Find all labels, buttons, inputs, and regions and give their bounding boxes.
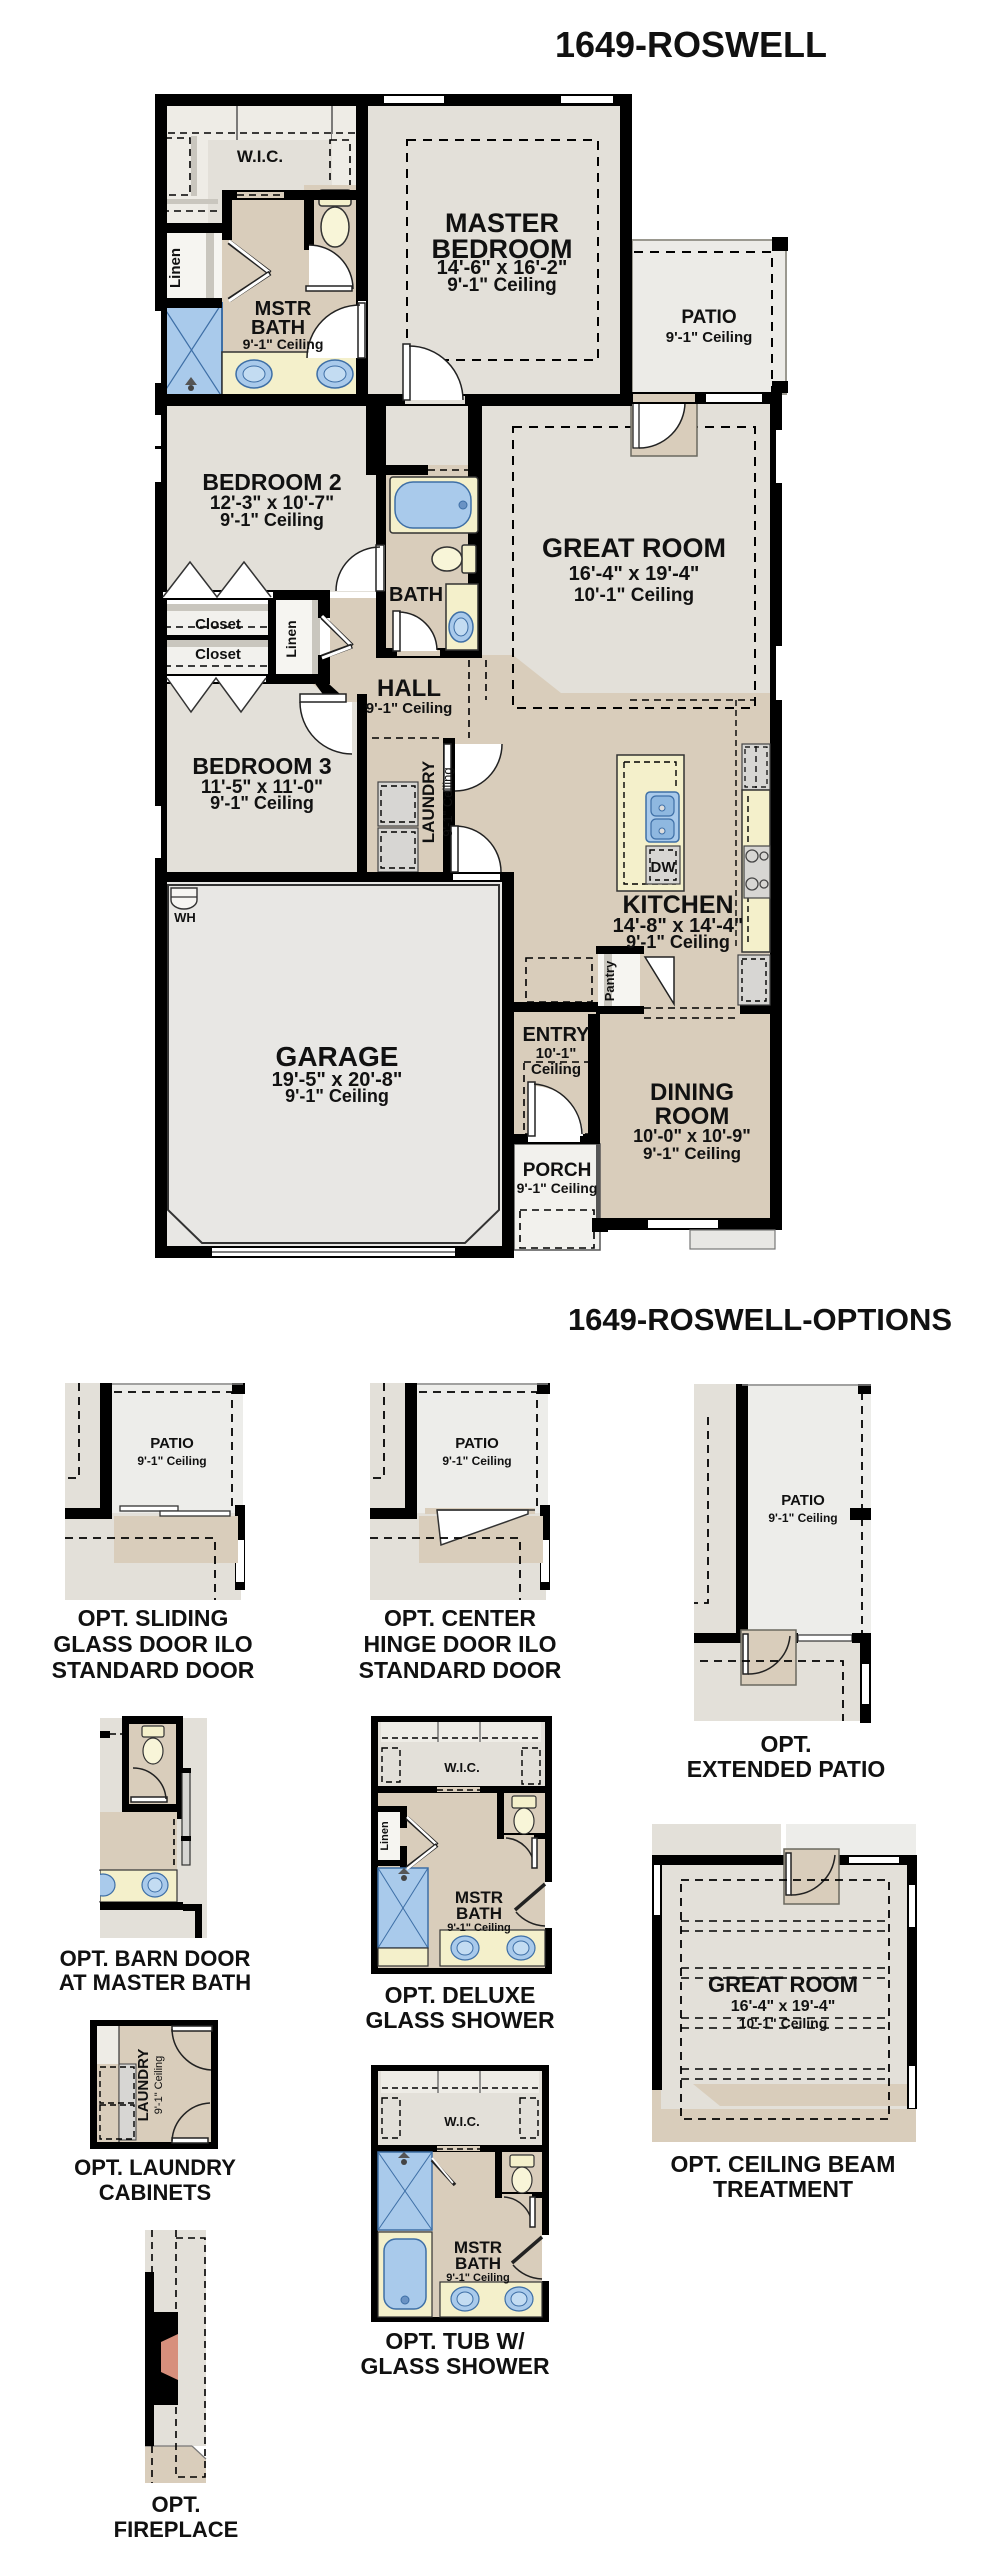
svg-text:16'-4" x 19'-4": 16'-4" x 19'-4" (731, 1998, 836, 2015)
svg-text:STANDARD DOOR: STANDARD DOOR (359, 1657, 562, 1683)
svg-text:9'-1" Ceiling: 9'-1" Ceiling (210, 793, 314, 813)
svg-text:Linen: Linen (167, 248, 184, 288)
svg-text:Closet: Closet (195, 646, 241, 663)
svg-text:DINING: DINING (650, 1079, 734, 1106)
svg-text:OPT. CEILING BEAM: OPT. CEILING BEAM (671, 2151, 896, 2177)
svg-text:ENTRY: ENTRY (522, 1024, 590, 1046)
svg-text:9'-1" Ceiling: 9'-1" Ceiling (626, 932, 730, 952)
svg-text:OPT.: OPT. (760, 1731, 811, 1757)
svg-text:OPT. DELUXE: OPT. DELUXE (385, 1982, 536, 2008)
svg-text:PATIO: PATIO (455, 1435, 499, 1452)
svg-text:DW: DW (651, 859, 677, 876)
svg-text:BATH: BATH (389, 584, 443, 606)
svg-text:9'-1" Ceiling: 9'-1" Ceiling (517, 1180, 598, 1196)
svg-text:BATH: BATH (455, 2254, 501, 2273)
svg-text:EXTENDED PATIO: EXTENDED PATIO (687, 1756, 886, 1782)
svg-text:W.I.C.: W.I.C. (237, 147, 283, 166)
svg-text:9'-1" Ceiling: 9'-1" Ceiling (243, 336, 324, 352)
svg-text:TREATMENT: TREATMENT (713, 2176, 853, 2202)
svg-text:GLASS SHOWER: GLASS SHOWER (360, 2353, 550, 2379)
svg-text:GREAT ROOM: GREAT ROOM (708, 1972, 858, 1997)
svg-text:9'-1" Ceiling: 9'-1" Ceiling (220, 510, 324, 530)
svg-text:STANDARD DOOR: STANDARD DOOR (52, 1657, 255, 1683)
svg-text:1649-ROSWELL-OPTIONS: 1649-ROSWELL-OPTIONS (568, 1302, 952, 1337)
svg-text:9'-1" Ceiling: 9'-1" Ceiling (440, 767, 455, 836)
svg-text:9'-1" Ceiling: 9'-1" Ceiling (366, 700, 453, 717)
svg-text:OPT.: OPT. (152, 2492, 201, 2517)
svg-text:Linen: Linen (283, 620, 299, 657)
svg-text:9'-1" Ceiling: 9'-1" Ceiling (768, 1511, 837, 1525)
svg-text:CABINETS: CABINETS (99, 2180, 211, 2205)
svg-text:Pantry: Pantry (602, 960, 617, 1001)
svg-text:9'-1" Ceiling: 9'-1" Ceiling (442, 1454, 511, 1468)
svg-text:9'-1" Ceiling: 9'-1" Ceiling (153, 2056, 165, 2115)
svg-text:PATIO: PATIO (781, 1492, 825, 1509)
svg-text:9'-1" Ceiling: 9'-1" Ceiling (447, 1922, 510, 1934)
svg-text:9'-1" Ceiling: 9'-1" Ceiling (285, 1086, 389, 1106)
svg-text:Ceiling: Ceiling (531, 1061, 581, 1078)
svg-text:9'-1" Ceiling: 9'-1" Ceiling (137, 1454, 206, 1468)
svg-text:9'-1" Ceiling: 9'-1" Ceiling (666, 329, 753, 346)
svg-text:1649-ROSWELL: 1649-ROSWELL (555, 24, 827, 65)
svg-text:LAUNDRY: LAUNDRY (135, 2049, 152, 2122)
svg-text:BATH: BATH (456, 1904, 502, 1923)
svg-text:PATIO: PATIO (150, 1435, 194, 1452)
svg-text:PORCH: PORCH (523, 1160, 592, 1181)
svg-text:9'-1" Ceiling: 9'-1" Ceiling (447, 275, 557, 296)
svg-text:GLASS SHOWER: GLASS SHOWER (365, 2007, 555, 2033)
svg-text:AT MASTER BATH: AT MASTER BATH (59, 1970, 251, 1995)
svg-text:Linen: Linen (379, 1821, 391, 1851)
svg-text:10'-1" Ceiling: 10'-1" Ceiling (739, 2015, 828, 2031)
svg-text:16'-4" x 19'-4": 16'-4" x 19'-4" (569, 563, 700, 585)
svg-text:OPT. LAUNDRY: OPT. LAUNDRY (74, 2155, 236, 2180)
svg-text:W.I.C.: W.I.C. (444, 1760, 479, 1775)
svg-text:OPT. BARN DOOR: OPT. BARN DOOR (60, 1946, 251, 1971)
svg-text:OPT. SLIDING: OPT. SLIDING (78, 1605, 229, 1631)
svg-text:GREAT ROOM: GREAT ROOM (542, 533, 726, 563)
svg-text:9'-1" Ceiling: 9'-1" Ceiling (446, 2272, 509, 2284)
svg-text:OPT. CENTER: OPT. CENTER (384, 1605, 536, 1631)
svg-text:GLASS DOOR ILO: GLASS DOOR ILO (53, 1631, 252, 1657)
svg-text:9'-1" Ceiling: 9'-1" Ceiling (643, 1144, 741, 1163)
svg-text:W.I.C.: W.I.C. (444, 2114, 479, 2129)
svg-text:PATIO: PATIO (681, 307, 736, 328)
svg-text:BEDROOM 3: BEDROOM 3 (192, 753, 331, 779)
svg-text:10'-0" x 10'-9": 10'-0" x 10'-9" (633, 1126, 751, 1146)
svg-text:HALL: HALL (377, 675, 441, 702)
svg-text:WH: WH (174, 910, 196, 925)
svg-text:OPT. TUB W/: OPT. TUB W/ (385, 2328, 525, 2354)
svg-text:10'-1" Ceiling: 10'-1" Ceiling (574, 585, 694, 606)
svg-text:FIREPLACE: FIREPLACE (114, 2517, 239, 2542)
svg-text:10'-1": 10'-1" (536, 1045, 577, 1062)
svg-text:HINGE DOOR ILO: HINGE DOOR ILO (364, 1631, 557, 1657)
svg-text:Closet: Closet (195, 616, 241, 633)
svg-text:LAUNDRY: LAUNDRY (419, 760, 438, 843)
svg-text:BEDROOM 2: BEDROOM 2 (202, 469, 341, 495)
svg-text:GARAGE: GARAGE (276, 1041, 399, 1072)
